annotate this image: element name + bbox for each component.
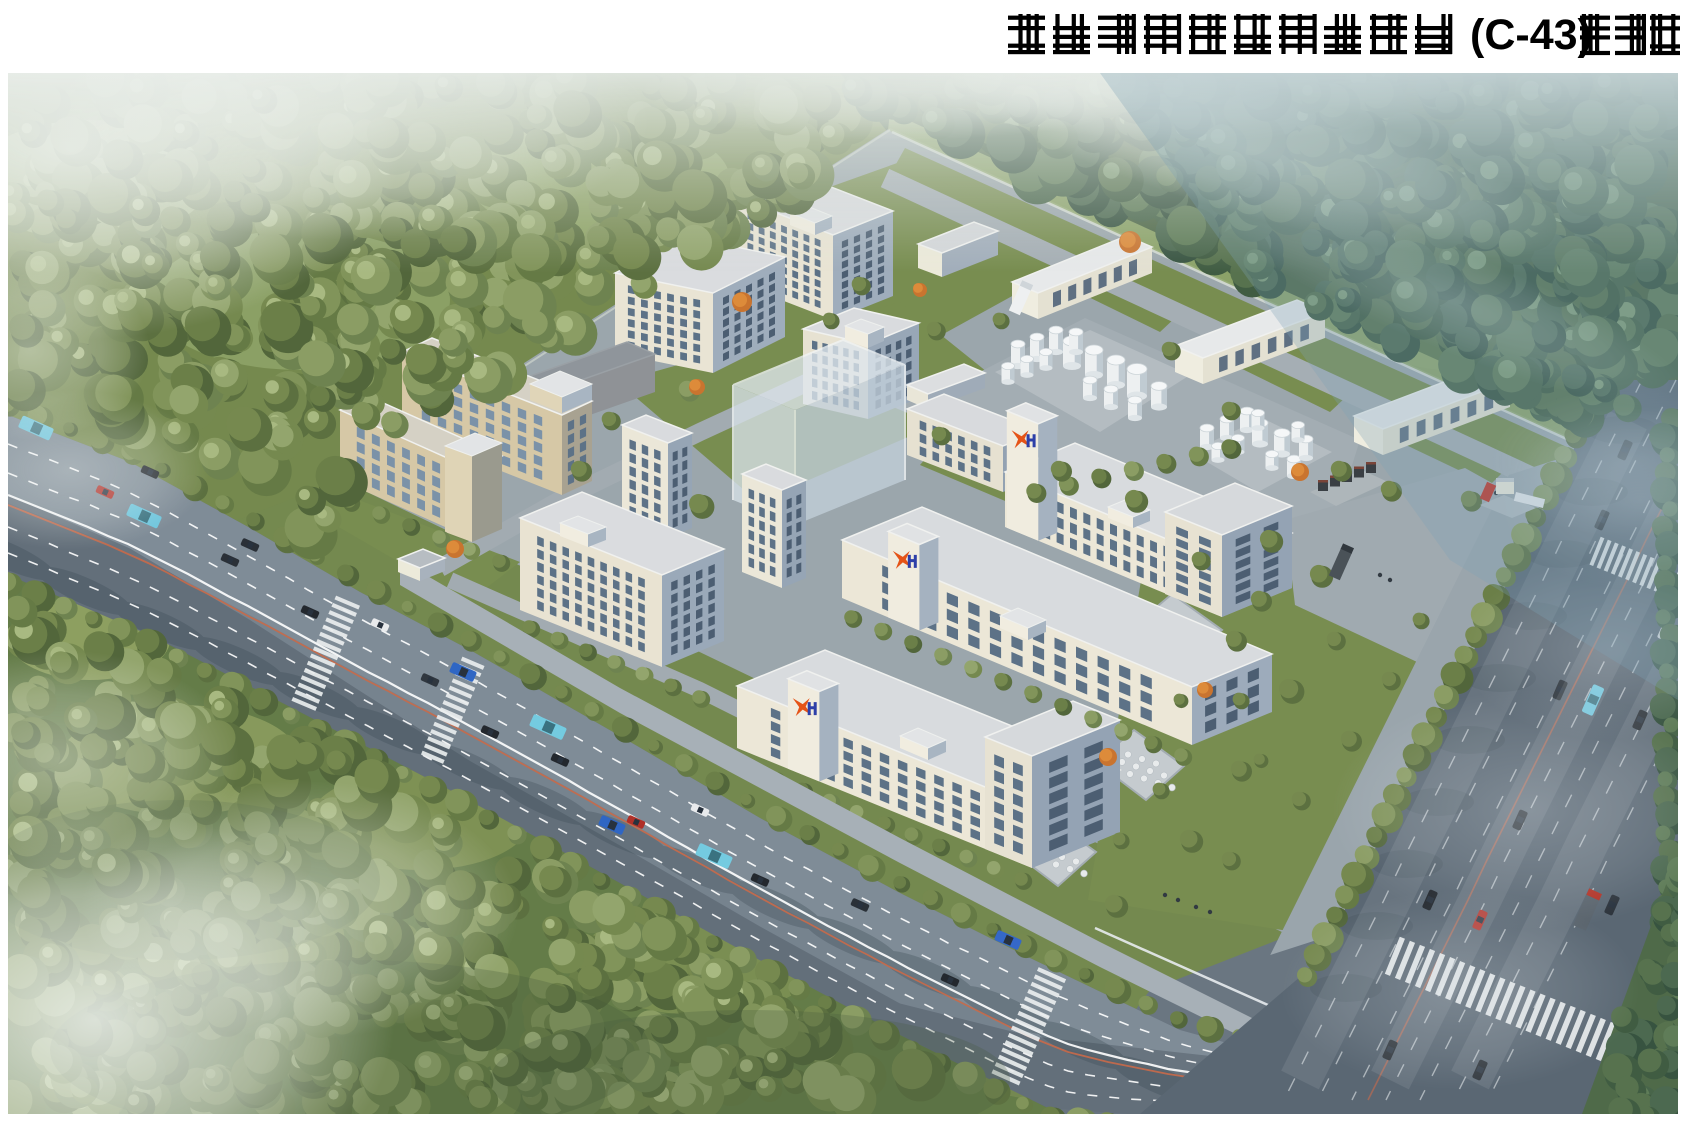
svg-text:(C-43): (C-43) xyxy=(1470,11,1592,59)
